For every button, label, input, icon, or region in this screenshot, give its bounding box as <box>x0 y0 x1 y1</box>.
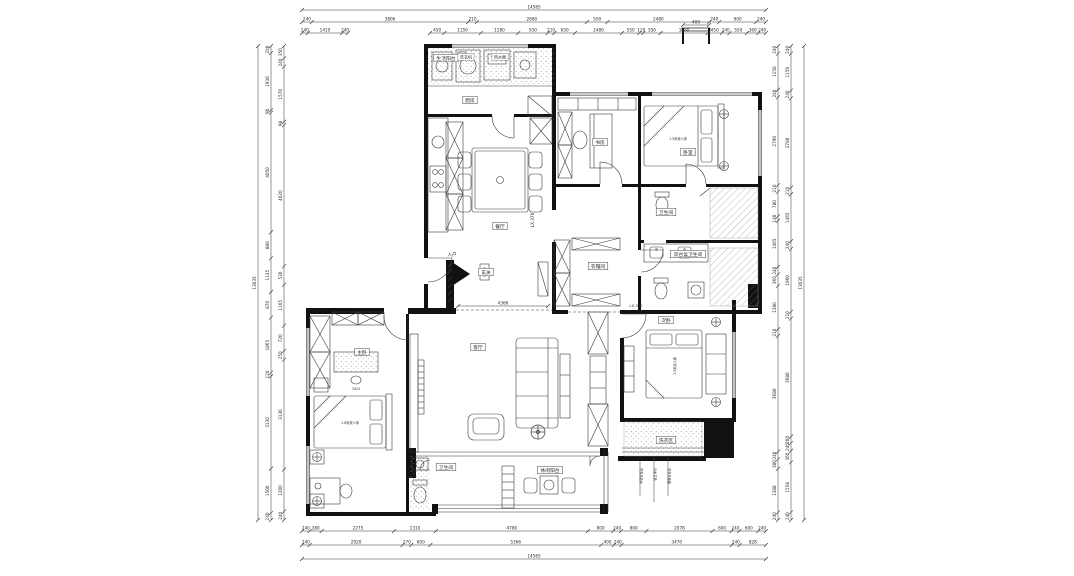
entry-label: 入户 <box>447 251 456 258</box>
dim-value: 1865 <box>265 340 270 351</box>
dim-value: 240 <box>772 451 777 459</box>
dim-value: 240 <box>772 512 777 520</box>
dim-value: 900 <box>734 17 742 22</box>
master-desk <box>310 478 352 504</box>
fixture-symbol <box>720 110 729 119</box>
laundry-note: 洗衣机给水 <box>639 468 644 485</box>
laundry-note: 洗衣机地漏 <box>667 468 672 484</box>
dimension-line: 4501150118093021065014805501205501480450… <box>428 28 768 36</box>
laundry-note: 污水立管 <box>653 468 658 481</box>
fixture-symbol <box>720 162 729 171</box>
room-label-balcony_leisure: 休闲阳台 <box>538 466 563 474</box>
dim-value: 4366 <box>498 301 509 306</box>
level-mark-bedroom: LX.300 <box>629 303 643 308</box>
dim-value: 240 <box>732 540 740 545</box>
room-label-master: 主卧 <box>355 348 369 356</box>
svg-text:厨房: 厨房 <box>465 97 475 104</box>
dim-value: 240 <box>278 58 283 66</box>
dresser-dim: 3424 <box>352 387 360 391</box>
dim-value: 3470 <box>671 540 682 545</box>
dim-value: 240 <box>785 46 790 54</box>
dim-value: 1200 <box>278 485 283 496</box>
room-label-cloakroom: 衣帽间 <box>588 262 608 270</box>
dimension-line: 13035 <box>252 44 260 522</box>
wardrobe-unit <box>588 312 608 354</box>
room-label-wc: 卫生间 <box>436 463 456 471</box>
study-desk <box>558 98 636 168</box>
dim-value: 1960 <box>785 275 790 286</box>
svg-text:双台盆卫生间: 双台盆卫生间 <box>674 251 703 258</box>
dim-value: 1388 <box>772 485 777 496</box>
dim-value: 500 <box>593 17 601 22</box>
appliance-label: 洗衣机 <box>458 54 474 61</box>
dimension-line: 14565 <box>300 554 768 562</box>
dim-value: 2078 <box>674 526 685 531</box>
dimension-line: 2401150240279021078014014652403601380210… <box>772 44 780 522</box>
dim-value: 250 <box>278 351 283 359</box>
dim-value: 870 <box>265 301 270 309</box>
dim-value: 650 <box>561 28 569 33</box>
dim-value: 98 <box>278 120 283 126</box>
dim-value: 400 <box>692 20 700 25</box>
svg-text:书房: 书房 <box>595 139 605 146</box>
room-label-bath1: 卫生间 <box>656 208 676 216</box>
dim-value: 3806 <box>385 17 396 22</box>
wardrobe-unit <box>572 294 620 306</box>
dim-value: 240 <box>613 526 621 531</box>
dim-value: 1380 <box>772 302 777 313</box>
dim-value: 600 <box>745 526 753 531</box>
dim-value: 3130 <box>278 409 283 420</box>
dim-value: 2680 <box>527 17 538 22</box>
dim-value: 3130 <box>265 417 270 428</box>
appliance-label: 热水器 <box>492 54 508 61</box>
dim-value: 1150 <box>457 28 468 33</box>
dim-value: 270 <box>403 540 411 545</box>
svg-text:卫生间: 卫生间 <box>659 209 674 216</box>
dim-value: 240 <box>772 266 777 274</box>
dim-value: 1500 <box>265 485 270 496</box>
svg-text:客厅: 客厅 <box>473 344 483 351</box>
dim-value: 1180 <box>494 28 505 33</box>
room-label-laundry: 洗衣区 <box>656 436 676 444</box>
svg-text:洗衣区: 洗衣区 <box>659 437 674 444</box>
floorplan-drawing: 1456524038062102680500248024090024024014… <box>0 0 1074 576</box>
dim-value: 550 <box>627 28 635 33</box>
armchair <box>468 414 504 440</box>
dim-value: 240 <box>758 28 766 33</box>
wardrobe-unit <box>558 112 572 145</box>
dim-value: 13035 <box>252 276 257 290</box>
dim-value: 1150 <box>772 66 777 77</box>
bed-guest-label: 1.5米双人床 <box>669 136 688 141</box>
bed-guest <box>644 104 724 168</box>
room-label-kitchen: 厨房 <box>463 96 477 104</box>
dim-value: 240 <box>731 526 739 531</box>
svg-text:次卧: 次卧 <box>661 317 671 324</box>
dim-value: 240 <box>722 28 730 33</box>
dim-value: 120 <box>637 28 645 33</box>
dim-value: 2790 <box>772 136 777 147</box>
dim-value: 1410 <box>320 28 331 33</box>
dim-value: 600 <box>417 540 425 545</box>
dimension-line: 13035 <box>798 44 806 522</box>
wardrobe-unit <box>554 273 570 306</box>
svg-text:休闲阳台: 休闲阳台 <box>540 467 559 474</box>
dim-value: 1930 <box>265 76 270 87</box>
dim-value: 240 <box>278 511 283 519</box>
dim-value: 240 <box>785 512 790 520</box>
dim-value: 240 <box>710 17 718 22</box>
wardrobe-unit <box>588 404 608 446</box>
dim-value: 240 <box>302 526 310 531</box>
dim-value: 720 <box>278 334 283 342</box>
dim-value: 14565 <box>527 554 541 559</box>
dim-value: 4020 <box>278 190 283 201</box>
dim-value: 800 <box>630 526 638 531</box>
dim-value: 240 <box>302 540 310 545</box>
dim-value: 550 <box>734 28 742 33</box>
dim-value: 1558 <box>785 482 790 493</box>
bed-master-label: 1.8米双人床 <box>341 420 360 425</box>
svg-text:洗衣机: 洗衣机 <box>460 54 472 60</box>
sofa <box>516 338 570 428</box>
dim-value: 360 <box>785 452 790 460</box>
kitchen-counter <box>428 118 448 232</box>
dim-value: 1480 <box>593 28 604 33</box>
svg-text:生活阳台: 生活阳台 <box>436 55 455 62</box>
plant-stand <box>502 466 514 508</box>
dim-value: 530 <box>278 271 283 279</box>
dim-value: 13035 <box>798 276 803 290</box>
dim-value: 240 <box>614 540 622 545</box>
dim-value: 240 <box>341 28 349 33</box>
room-label-dining: 餐厅 <box>493 222 507 230</box>
dimension-line: 2401410240 <box>300 28 350 36</box>
dim-value: 140 <box>772 214 777 222</box>
dim-value: 240 <box>303 17 311 22</box>
floorplan-canvas: 1456524038062102680500248024090024024014… <box>0 0 1074 576</box>
dimension-line: 2403802275131047808002408002078600240600… <box>300 526 768 534</box>
dim-value: 240 <box>758 526 766 531</box>
room-label-entry: 玄关 <box>479 268 493 276</box>
dim-value: 400 <box>604 540 612 545</box>
svg-text:卧室: 卧室 <box>683 149 693 156</box>
dim-value: 360 <box>749 28 757 33</box>
wardrobe-unit <box>554 240 570 273</box>
dimension-line: 240292027060053664002403470240828 <box>300 540 768 548</box>
dim-value: 210 <box>547 28 555 33</box>
dim-value: 14565 <box>527 5 541 10</box>
dim-value: 880 <box>265 241 270 249</box>
dim-value: 90 <box>265 108 270 114</box>
dim-value: 5366 <box>510 540 521 545</box>
dim-value: 210 <box>469 17 477 22</box>
wardrobe-unit <box>446 122 463 158</box>
dim-value: 1465 <box>785 212 790 223</box>
dim-value: 3680 <box>772 388 777 399</box>
dim-value: 240 <box>785 443 790 451</box>
level-mark-living: LX.370 <box>530 212 535 227</box>
dim-value: 600 <box>718 526 726 531</box>
fixture-symbol <box>313 497 322 506</box>
dim-value: 350 <box>278 48 283 56</box>
dim-value: 210 <box>772 328 777 336</box>
dim-value: 240 <box>265 512 270 520</box>
dim-value: 450 <box>433 28 441 33</box>
room-label-living: 客厅 <box>471 343 485 351</box>
entry-arrow-icon <box>452 262 470 286</box>
dim-value: 1145 <box>265 269 270 280</box>
dim-value: 360 <box>772 276 777 284</box>
bistro-set <box>524 476 575 494</box>
svg-text:餐厅: 餐厅 <box>495 223 505 230</box>
room-label-balcony_service: 生活阳台 <box>434 54 459 62</box>
wardrobe-unit <box>310 352 330 388</box>
dim-value: 240 <box>757 17 765 22</box>
wardrobe-unit <box>558 145 572 178</box>
dim-value: 120 <box>265 370 270 378</box>
dim-value: 380 <box>312 526 320 531</box>
dim-value: 1465 <box>772 238 777 249</box>
svg-text:衣帽间: 衣帽间 <box>591 263 606 270</box>
svg-text:卫生间: 卫生间 <box>439 464 454 471</box>
dim-value: 1165 <box>278 300 283 311</box>
dim-value: 930 <box>529 28 537 33</box>
dimension-line: 400 <box>681 20 711 28</box>
dim-value: 4780 <box>507 526 518 531</box>
dim-value: 2920 <box>351 540 362 545</box>
dim-value: 1570 <box>278 89 283 100</box>
dim-value: 3680 <box>785 372 790 383</box>
dim-value: 240 <box>265 45 270 53</box>
dim-value: 4050 <box>265 167 270 178</box>
dimension-line: 14565 <box>300 5 768 13</box>
room-label-bedroom3: 次卧 <box>659 316 673 324</box>
dimension-line: 4366 <box>456 301 550 309</box>
dresser <box>334 352 378 384</box>
dimension-line: 3502401570984020530116572025031301200240 <box>278 44 286 522</box>
dim-value: 300 <box>772 460 777 468</box>
dining-table <box>458 148 542 212</box>
wardrobe-unit <box>572 238 620 250</box>
dim-value: 240 <box>772 45 777 53</box>
fixture-symbol <box>712 398 721 407</box>
dim-value: 2275 <box>353 526 364 531</box>
tv-cabinet <box>410 334 424 452</box>
fixture-symbol <box>712 318 721 327</box>
dim-value: 2780 <box>785 137 790 148</box>
dim-value: 2480 <box>653 17 664 22</box>
svg-text:热水器: 热水器 <box>494 54 506 60</box>
doors-layer <box>384 116 706 470</box>
svg-text:玄关: 玄关 <box>481 269 491 276</box>
wardrobe-unit <box>446 158 463 194</box>
dim-value: 240 <box>785 241 790 249</box>
dimension-line: 2401150240278021014652401960210368020024… <box>785 44 793 522</box>
room-label-bath2: 双台盆卫生间 <box>670 250 705 258</box>
fixture-symbol <box>313 453 322 462</box>
svg-text:主卧: 主卧 <box>357 349 367 356</box>
dim-value: 1310 <box>410 526 421 531</box>
fan-symbol <box>531 425 545 439</box>
dim-value: 240 <box>301 28 309 33</box>
dimension-line: 2401930904050880114587018651203130150024… <box>265 44 273 522</box>
room-label-study: 书房 <box>593 138 607 146</box>
wardrobe-unit <box>310 316 330 352</box>
dim-value: 1480 <box>679 28 690 33</box>
dim-value: 210 <box>785 311 790 319</box>
dim-value: 450 <box>711 28 719 33</box>
dim-value: 800 <box>597 526 605 531</box>
dim-value: 550 <box>648 28 656 33</box>
dim-value: 240 <box>785 90 790 98</box>
dim-value: 200 <box>785 436 790 444</box>
room-label-bedroom2: 卧室 <box>681 148 695 156</box>
dim-value: 828 <box>749 540 757 545</box>
dim-value: 210 <box>772 184 777 192</box>
dim-value: 780 <box>772 200 777 208</box>
bed-second-label: 1.5米双人床 <box>672 356 677 375</box>
dim-value: 1150 <box>785 66 790 77</box>
dim-value: 210 <box>785 187 790 195</box>
toilet-bath2 <box>654 278 668 299</box>
dim-value: 240 <box>772 89 777 97</box>
